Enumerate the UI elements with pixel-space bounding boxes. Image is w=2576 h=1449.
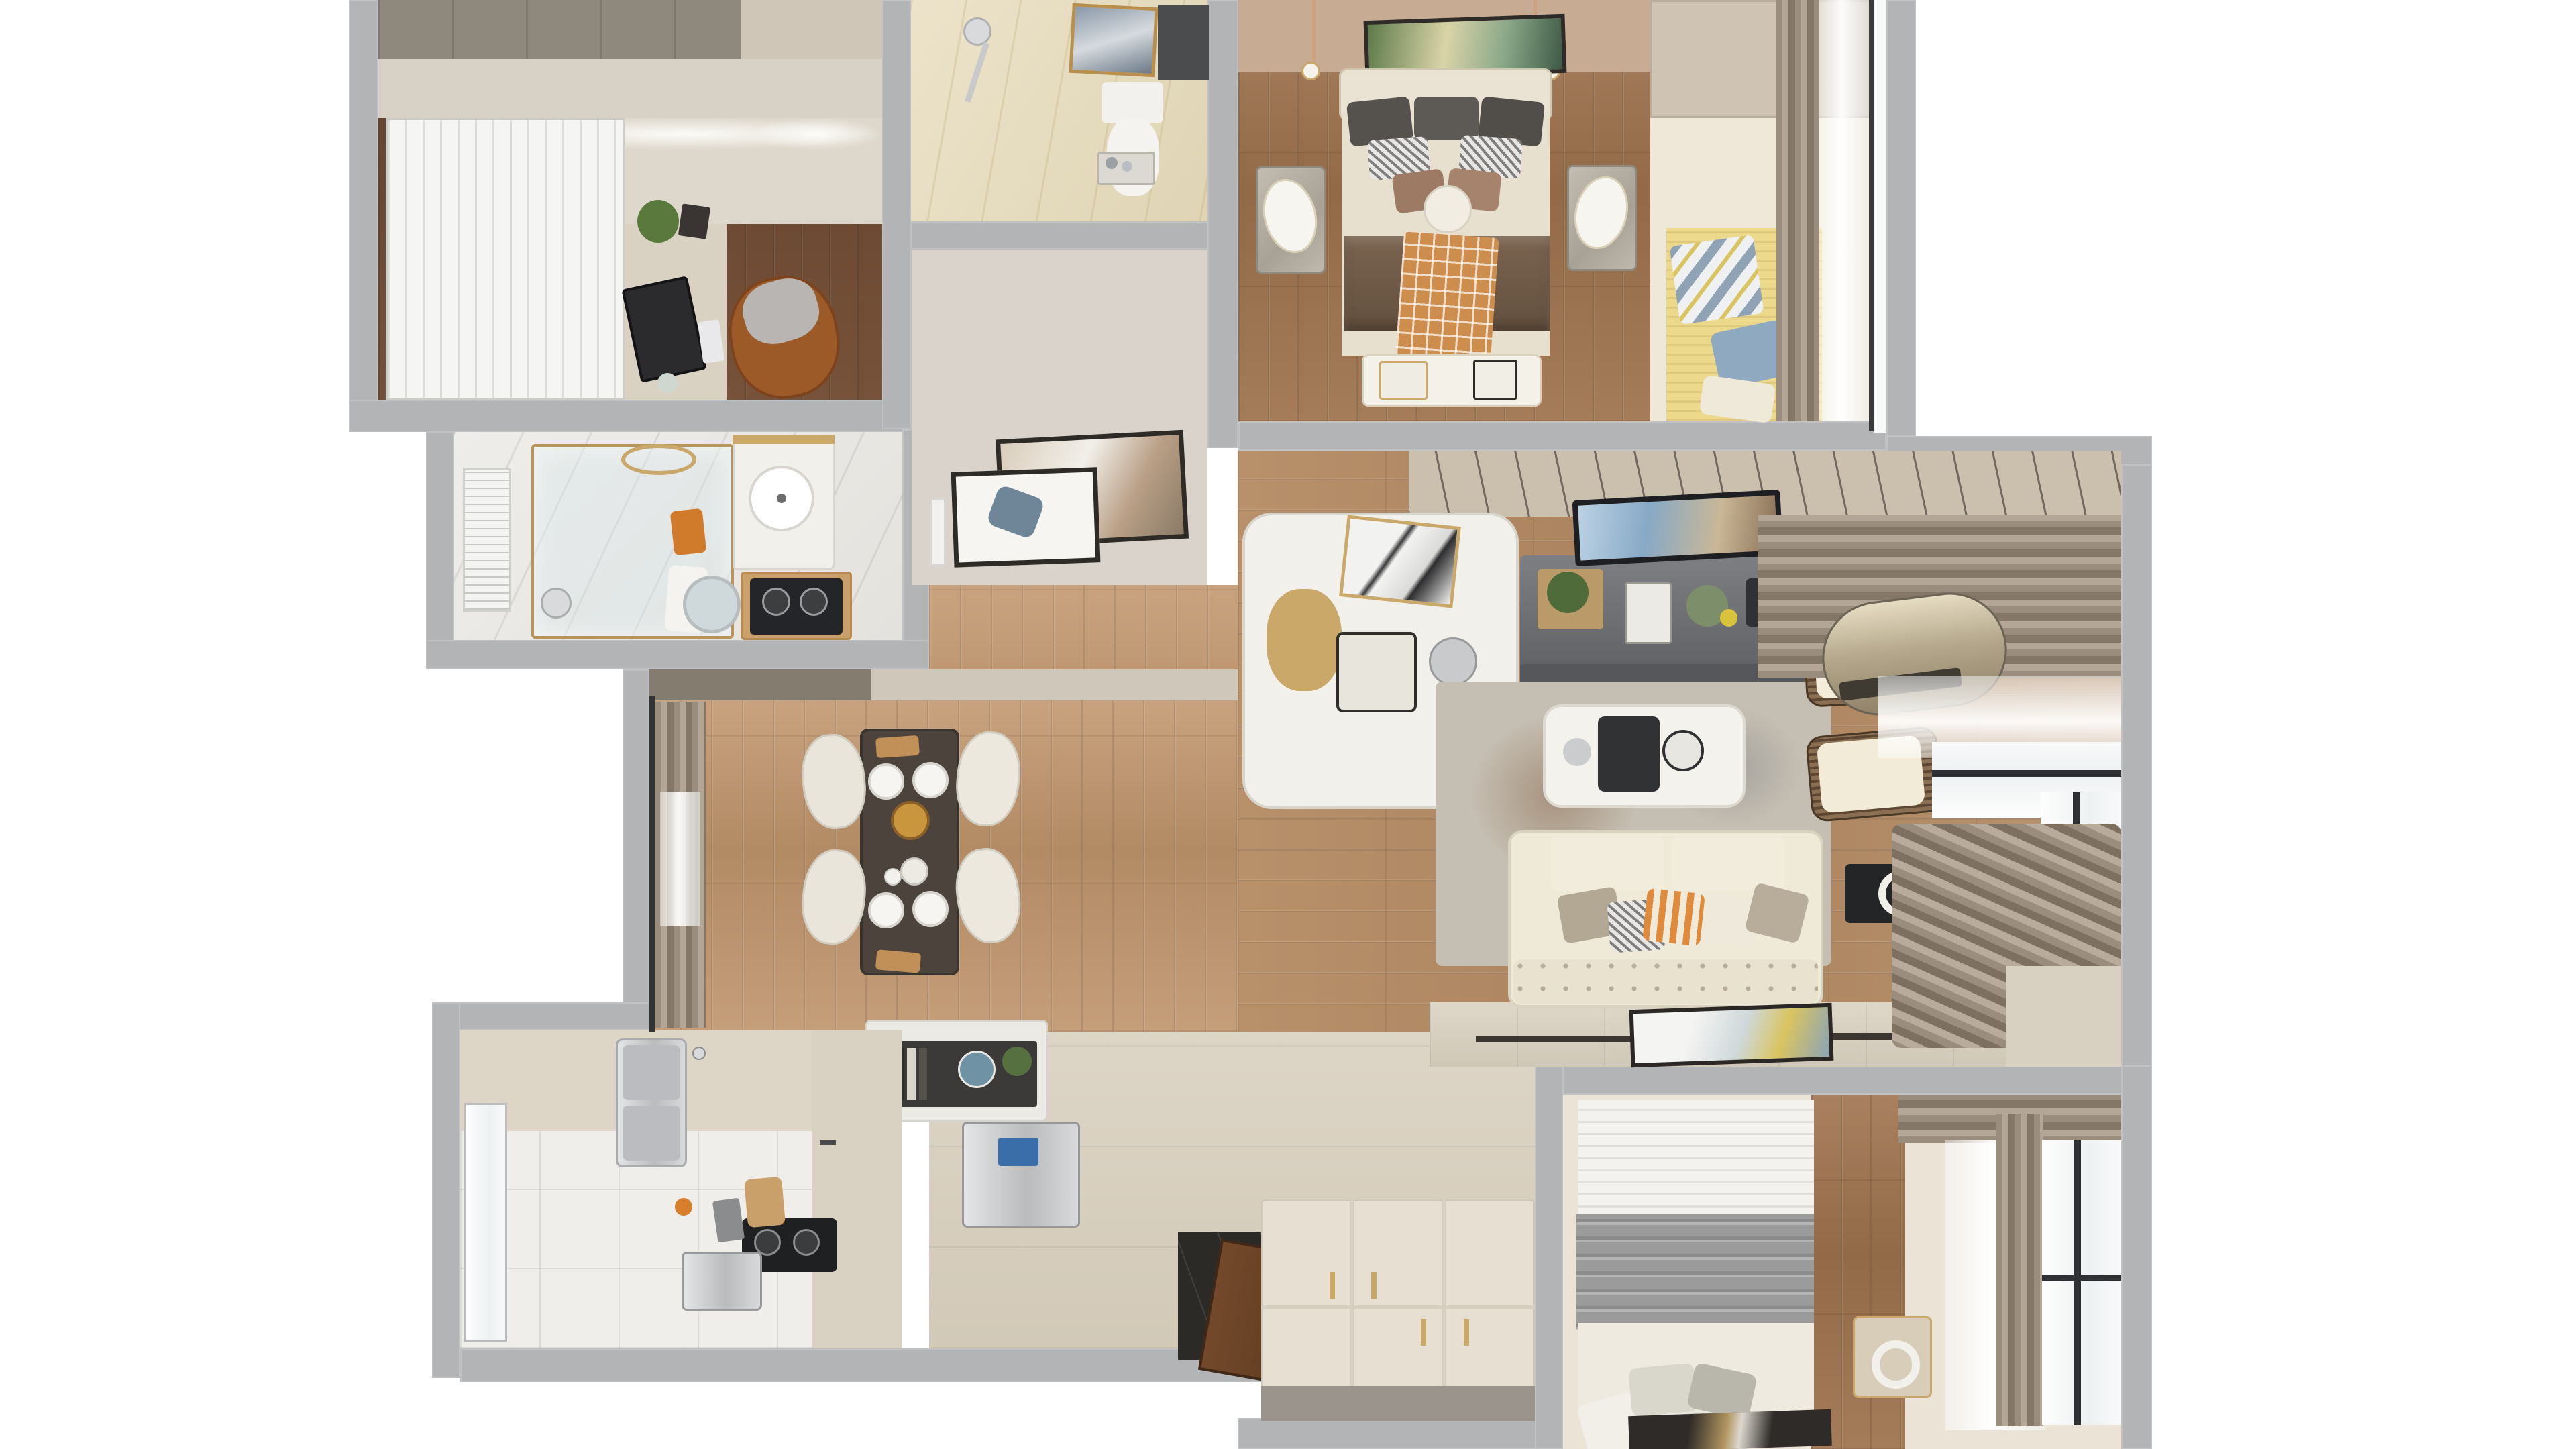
- dining-curtain-rod: [649, 696, 655, 1032]
- wall-bottom-entry: [460, 1348, 1261, 1382]
- wall-bath-top-bottom: [911, 221, 1209, 250]
- wall-kitchen-left: [432, 1002, 460, 1378]
- coffee-table-bowl: [1563, 738, 1591, 766]
- study-plant: [637, 200, 679, 243]
- toilet-bottle-2: [1122, 161, 1132, 172]
- dining-plate-4: [912, 891, 949, 927]
- floor-art: [1629, 1003, 1834, 1067]
- niche-book-3: [907, 1048, 916, 1100]
- vanity-towel-bar: [733, 435, 835, 444]
- bench-tray-1: [1379, 361, 1428, 400]
- console-art: [1339, 515, 1461, 608]
- wall-kitchen-top: [432, 1002, 653, 1030]
- bed2-blanket: [1576, 1214, 1814, 1330]
- gallery-door: [930, 498, 946, 566]
- kitchen-hood: [682, 1252, 762, 1311]
- dining-plate-3: [868, 892, 904, 928]
- dining-board-1: [875, 735, 920, 758]
- coffee-table-pot: [1662, 730, 1704, 771]
- toilet-tank: [1102, 82, 1163, 123]
- screenshot-root: [0, 0, 2576, 1449]
- sill-right: [2006, 966, 2121, 1067]
- floor-plan-stage: [0, 0, 2576, 1449]
- bath-top-art: [1069, 3, 1158, 78]
- master-accent-line-1: [1312, 0, 1316, 70]
- console-gold-coral: [1267, 589, 1342, 691]
- wall-study-bottom: [349, 400, 906, 432]
- balcony-sheer: [1819, 0, 1869, 421]
- dining-pie: [891, 801, 930, 840]
- wall-bath-top-right: [1207, 0, 1238, 448]
- wall-study-bath-divider: [882, 0, 912, 429]
- tv-lemon: [1720, 609, 1737, 627]
- kitchen-handle-1: [820, 1140, 836, 1145]
- kitchen-counter-right: [812, 1030, 902, 1348]
- study-cabinet-light: [741, 0, 882, 62]
- kitchen-knife-block: [712, 1198, 745, 1243]
- dining-board-2: [875, 949, 921, 973]
- study-cup: [657, 373, 678, 393]
- nook-handle-3: [1421, 1319, 1426, 1346]
- dining-sideboard-dark: [649, 669, 871, 700]
- niche-book-4: [919, 1048, 927, 1100]
- window-bed2-frame-v: [2074, 1140, 2081, 1425]
- tv-plant: [1547, 572, 1589, 613]
- bed-pillow-dark-2: [1414, 97, 1479, 140]
- study-photo-frame: [678, 203, 710, 239]
- bath-mid-towels-orange: [670, 508, 707, 556]
- nook-handle-4: [1464, 1319, 1469, 1346]
- window-top-frame: [1932, 770, 2121, 777]
- dining-plate-1: [868, 763, 904, 800]
- dining-cup: [884, 868, 902, 885]
- bench-tray-2: [1473, 360, 1517, 400]
- kitchen-cutting-board: [744, 1177, 786, 1228]
- shower-head: [963, 17, 991, 46]
- wall-dining-left: [623, 669, 649, 1032]
- wall-bedroom2-right: [2121, 1065, 2152, 1449]
- console-silver-sphere: [1429, 637, 1477, 686]
- kitchen-sink-basin-2: [623, 1106, 680, 1161]
- bath-mid-light: [621, 444, 696, 475]
- wall-balcony-right: [1886, 0, 1916, 436]
- kitchen-window: [464, 1103, 507, 1342]
- master-pendant-left: [1301, 62, 1320, 80]
- bath-top-niche: [1158, 5, 1209, 80]
- vanity-drain: [777, 494, 786, 503]
- balcony-rod: [1869, 0, 1874, 431]
- sofa-pillow-3: [1642, 888, 1705, 947]
- laundry-drum-2: [800, 588, 828, 616]
- sofa-back-tufted: [1513, 959, 1818, 1004]
- dining-sheer: [660, 792, 700, 926]
- window-bed2-frame-h: [2042, 1275, 2121, 1281]
- nook-handle-1: [1330, 1272, 1335, 1299]
- kitchen-bottle: [675, 1198, 692, 1216]
- wall-study-left: [349, 0, 378, 432]
- bath-mid-blinds: [463, 468, 511, 612]
- sofa-seat-left: [1551, 836, 1664, 891]
- laundry-drum-1: [762, 588, 790, 616]
- kitchen-sink-basin-1: [623, 1045, 680, 1100]
- coffee-table-tray: [1598, 716, 1660, 792]
- wall-bath-mid-left: [426, 432, 454, 653]
- niche-plant: [1002, 1046, 1032, 1076]
- ring-lamp-2: [1872, 1340, 1920, 1389]
- bed-throw-plaid: [1395, 231, 1499, 369]
- kitchen-burner-2: [793, 1229, 820, 1256]
- study-wardrobe: [386, 118, 625, 400]
- study-cabinet-face: [378, 59, 882, 118]
- dining-sideboard-light: [871, 669, 1238, 700]
- balcony-curtain: [1776, 0, 1819, 421]
- dining-plate-2: [912, 762, 949, 798]
- tv-books: [1625, 582, 1672, 644]
- toilet-bottle-1: [1106, 157, 1118, 169]
- bed2-runner-rug: [1628, 1409, 1832, 1449]
- nook-base-gray: [1261, 1386, 1535, 1421]
- nook-handle-2: [1371, 1272, 1377, 1299]
- niche-plate: [958, 1051, 996, 1088]
- wall-master-bottom: [1238, 421, 1886, 451]
- tv-screen: [1572, 490, 1784, 566]
- bed-pillow-round: [1424, 185, 1472, 233]
- kitchen-faucet: [692, 1046, 706, 1060]
- shower-fixture-mid: [541, 588, 572, 619]
- study-cabinet-dark: [378, 0, 741, 62]
- balcony-window: [1874, 0, 1886, 433]
- bath-mid-mirror: [683, 576, 741, 633]
- wall-living-right: [2121, 436, 2152, 1067]
- window-bed2: [2042, 1140, 2121, 1425]
- wall-bedroom2-left: [1535, 1065, 1563, 1449]
- dining-table: [860, 729, 959, 975]
- dining-teapot: [900, 857, 928, 885]
- fridge-screen: [998, 1138, 1038, 1166]
- wall-bath-mid-bottom: [426, 640, 929, 669]
- nook-seam-h: [1261, 1305, 1535, 1309]
- wall-bedroom2-top: [1563, 1065, 2152, 1095]
- bed2-ruffle: [1578, 1100, 1814, 1220]
- platform-slat-1: [1476, 1036, 1650, 1042]
- balcony-pillow-triangle: [1669, 235, 1764, 325]
- console-tray: [1336, 632, 1417, 712]
- sofa-seat-right: [1672, 836, 1784, 891]
- curtain-bed2-right: [1996, 1114, 2043, 1426]
- bed2-pillow-3: [1628, 1363, 1698, 1417]
